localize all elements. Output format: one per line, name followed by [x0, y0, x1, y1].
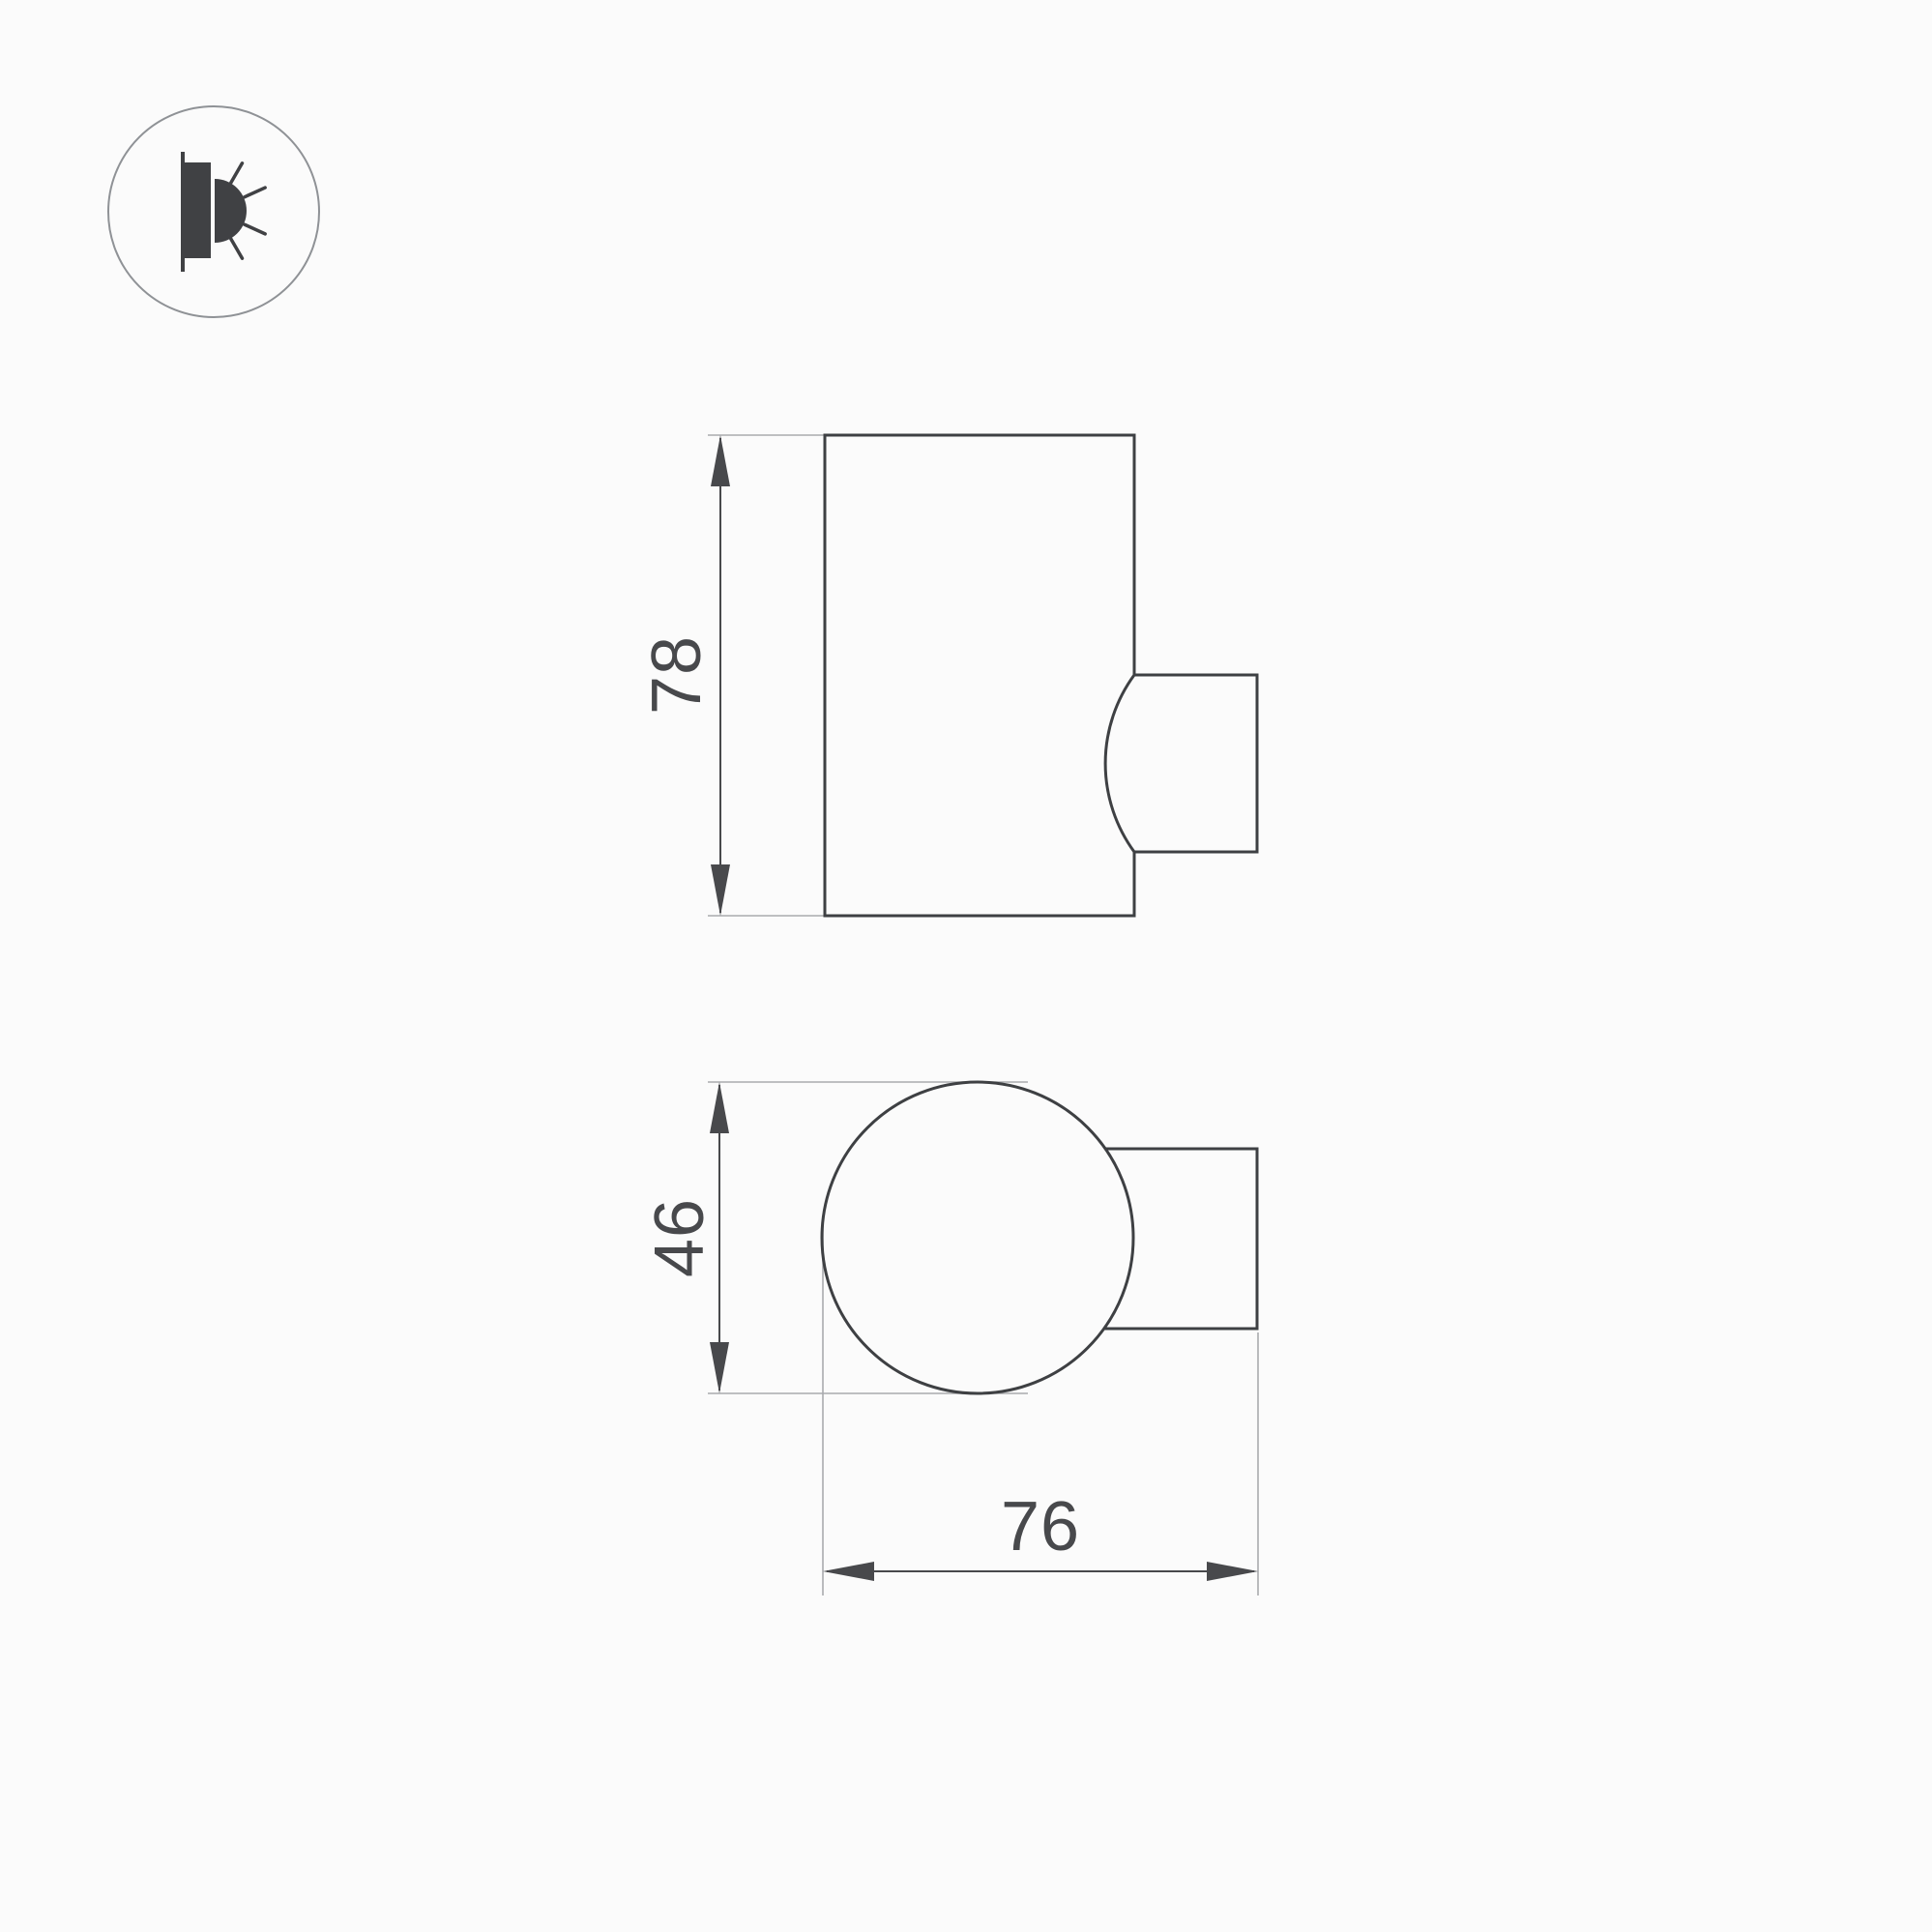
side-view: 78 — [638, 435, 1257, 916]
side-shape-outlines — [825, 435, 1257, 916]
mount-bracket-side-outline — [1105, 675, 1257, 852]
light-ray-icon — [245, 188, 265, 197]
top-diameter-label: 46 — [641, 1198, 718, 1277]
top-depth-label: 76 — [1001, 1488, 1080, 1566]
top-view: 46 76 — [641, 1082, 1258, 1595]
product-icon-badge — [108, 106, 319, 317]
icon-lens — [215, 179, 247, 243]
arrow-down-icon — [711, 864, 730, 916]
technical-drawing-svg: 78 — [0, 0, 1932, 1932]
side-extension-lines — [708, 435, 827, 916]
lamp-body-side-outline — [825, 435, 1134, 916]
side-height-label: 78 — [638, 635, 716, 715]
top-shape-outlines — [822, 1082, 1257, 1393]
light-ray-icon — [245, 224, 265, 234]
dimension-drawing-page: 78 — [0, 0, 1932, 1932]
top-dimension-arrows — [710, 1082, 1258, 1581]
lamp-body-top-circle — [822, 1082, 1133, 1393]
arrow-left-icon — [823, 1562, 874, 1581]
arrow-up-icon — [710, 1082, 729, 1133]
light-ray-icon — [231, 163, 243, 183]
arrow-down-icon — [710, 1342, 729, 1393]
icon-lamp-body — [184, 162, 211, 258]
top-extension-lines — [708, 1082, 1258, 1595]
icon-ring — [108, 106, 319, 317]
arrow-up-icon — [711, 435, 730, 486]
mount-bracket-top-outline — [1104, 1149, 1257, 1329]
arrow-right-icon — [1207, 1562, 1258, 1581]
light-ray-icon — [231, 239, 243, 258]
